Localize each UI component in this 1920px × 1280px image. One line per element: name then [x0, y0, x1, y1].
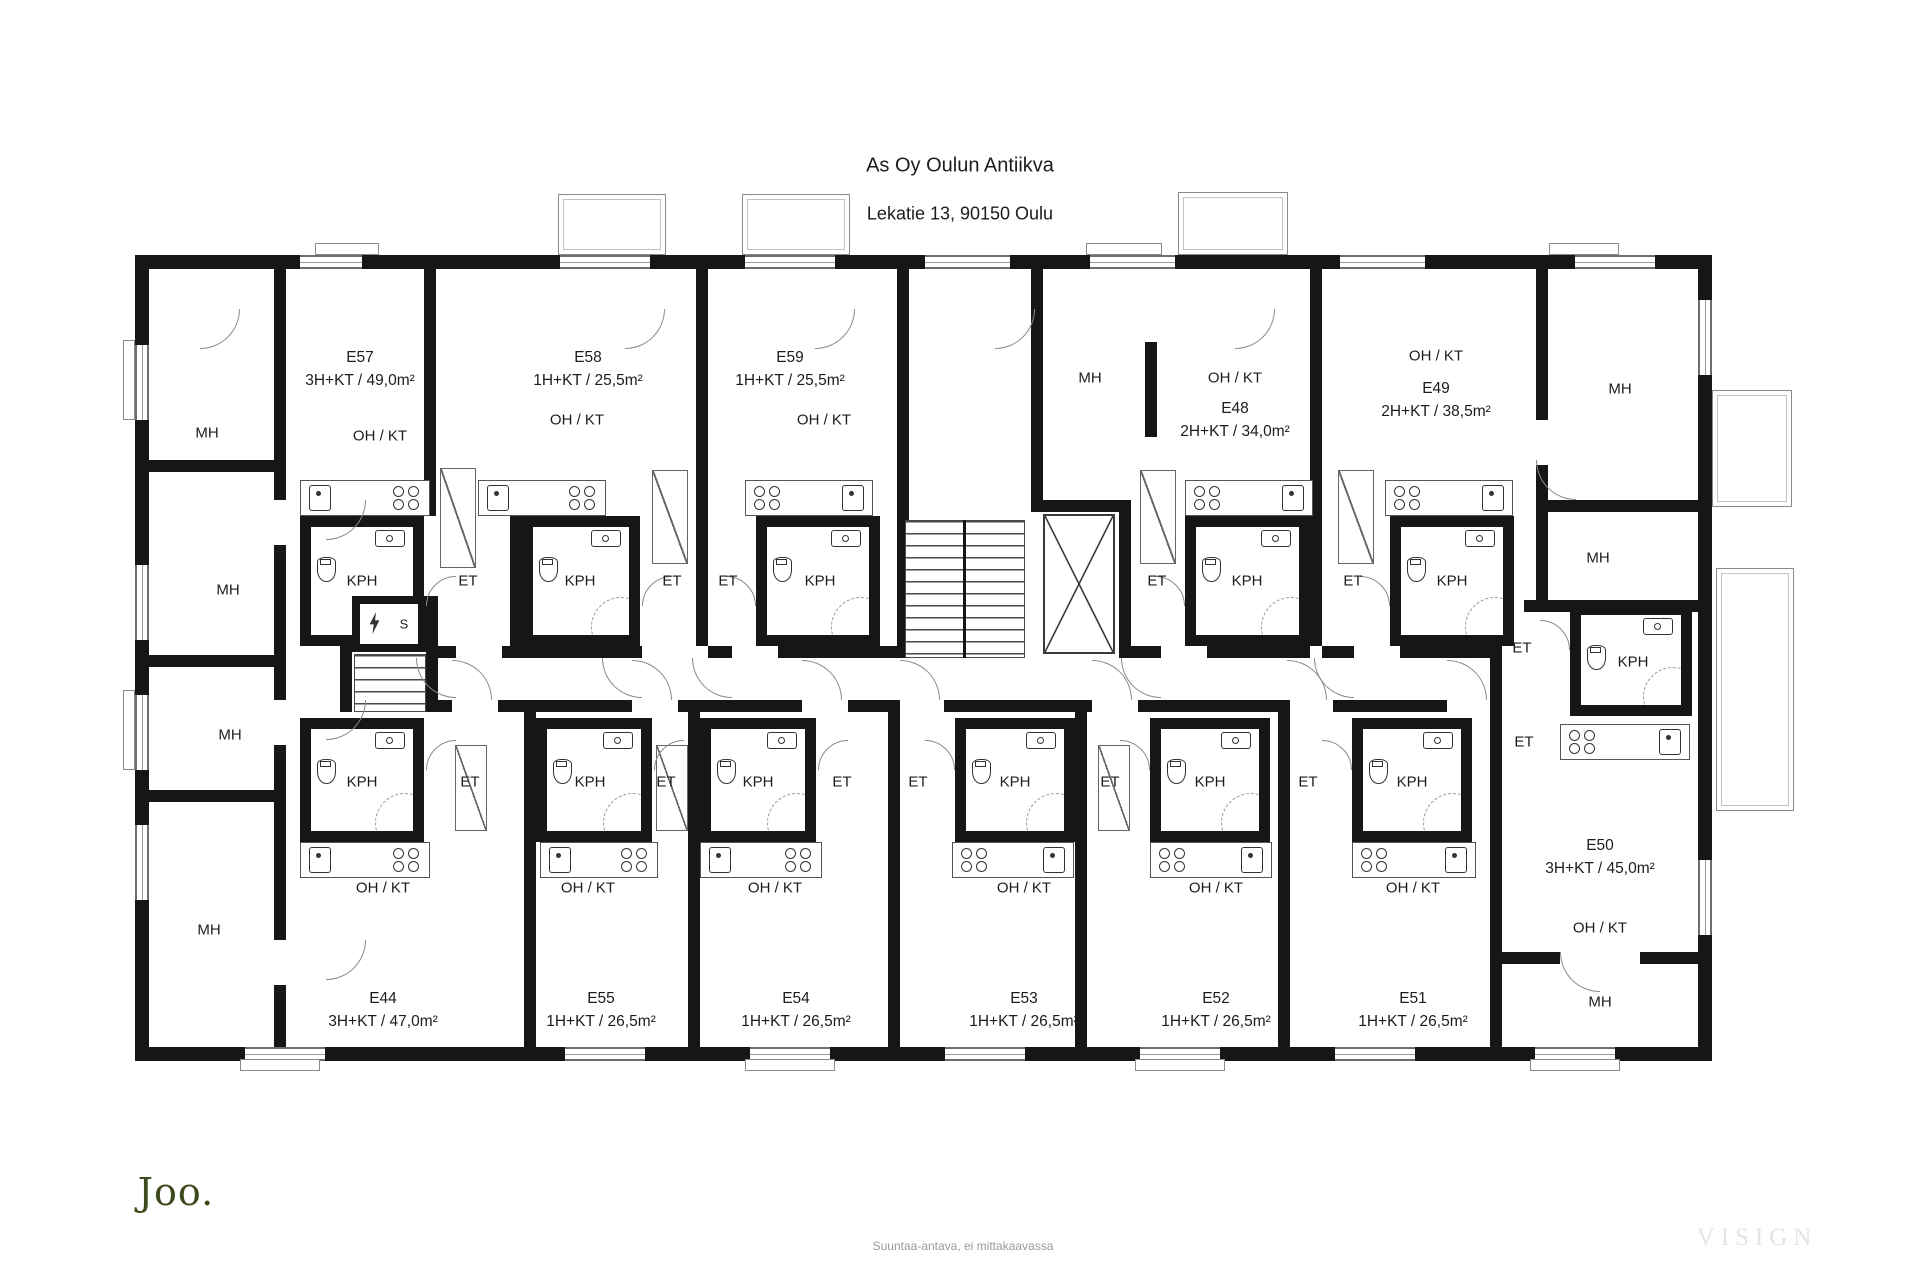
burner-icon	[584, 486, 595, 497]
burner-icon	[1376, 861, 1387, 872]
apartment-label-e44: E443H+KT / 47,0m²	[328, 987, 438, 1034]
kitchen-counter	[1352, 842, 1476, 878]
room-label-bedroom: MH	[197, 922, 220, 939]
burner-icon	[408, 486, 419, 497]
wall	[1322, 646, 1354, 658]
apartment-label-e58: E581H+KT / 25,5m²	[533, 346, 643, 393]
room-label-entry: ET	[1512, 640, 1531, 657]
door-arc	[1292, 740, 1352, 800]
apartment-label-e51: E511H+KT / 26,5m²	[1358, 987, 1468, 1034]
wall	[424, 269, 436, 516]
door-arc	[286, 460, 366, 540]
room-label-living: OH / KT	[1573, 920, 1627, 937]
window	[135, 825, 149, 900]
stove-icon	[1569, 730, 1597, 754]
burner-icon	[569, 499, 580, 510]
door-arc	[818, 740, 878, 800]
toilet-icon	[553, 759, 572, 784]
wall	[135, 790, 286, 802]
sink-icon	[309, 847, 331, 873]
burner-icon	[754, 499, 765, 510]
window	[1698, 860, 1712, 935]
washbasin-icon	[1026, 732, 1056, 749]
room-label-bedroom: MH	[216, 582, 239, 599]
wall	[1400, 646, 1490, 658]
burner-icon	[1394, 499, 1405, 510]
washbasin-icon	[1465, 530, 1495, 547]
burner-icon	[393, 848, 404, 859]
stove-icon	[1361, 848, 1389, 872]
page-subtitle: Lekatie 13, 90150 Oulu	[867, 204, 1053, 225]
room-label-bathroom: KPH	[1618, 654, 1649, 671]
wall	[696, 269, 708, 646]
sink-icon	[1445, 847, 1467, 873]
apartment-label-e49: E492H+KT / 38,5m²	[1381, 377, 1491, 424]
window	[300, 255, 362, 269]
burner-icon	[769, 486, 780, 497]
door-arc	[1195, 269, 1275, 349]
kitchen-counter	[952, 842, 1074, 878]
door-arc	[955, 269, 1035, 349]
page-title: As Oy Oulun Antiikva	[866, 155, 1054, 178]
kitchen-counter	[1385, 480, 1513, 516]
room-label-living: OH / KT	[550, 412, 604, 429]
kitchen-counter	[1185, 480, 1313, 516]
electrical-room	[352, 596, 426, 652]
burner-icon	[961, 861, 972, 872]
shower-icon	[603, 793, 652, 842]
apartment-spec: 1H+KT / 26,5m²	[741, 1010, 851, 1033]
washbasin-icon	[767, 732, 797, 749]
burner-icon	[800, 848, 811, 859]
wall	[1333, 700, 1447, 712]
wall	[1536, 500, 1712, 512]
room-label-bathroom: KPH	[347, 573, 378, 590]
apartment-spec: 3H+KT / 47,0m²	[328, 1010, 438, 1033]
apartment-spec: 1H+KT / 26,5m²	[546, 1010, 656, 1033]
wall	[1490, 952, 1560, 964]
balcony	[1178, 192, 1288, 255]
room-label-living: OH / KT	[797, 412, 851, 429]
shower-icon	[1026, 793, 1075, 842]
window	[135, 345, 149, 420]
room-label-entry: ET	[1514, 734, 1533, 751]
wall	[1490, 646, 1502, 1047]
door-arc	[775, 269, 855, 349]
disclaimer-note: Suuntaa-antava, ei mittakaavassa	[873, 1239, 1054, 1253]
toilet-icon	[317, 557, 336, 582]
wardrobe	[1338, 470, 1374, 564]
wall	[1207, 646, 1310, 658]
apartment-spec: 2H+KT / 34,0m²	[1180, 420, 1290, 443]
room-label-living: OH / KT	[1409, 348, 1463, 365]
apartment-spec: 1H+KT / 26,5m²	[969, 1010, 1079, 1033]
burner-icon	[621, 861, 632, 872]
shower-icon	[591, 597, 640, 646]
room-label-bedroom: MH	[1588, 994, 1611, 1011]
toilet-icon	[1407, 557, 1426, 582]
wall	[135, 655, 286, 667]
apartment-id: E44	[328, 987, 438, 1010]
room-label-bedroom: MH	[1586, 550, 1609, 567]
burner-icon	[961, 848, 972, 859]
burner-icon	[393, 486, 404, 497]
toilet-icon	[1202, 557, 1221, 582]
wardrobe	[652, 470, 688, 564]
door-arc	[160, 269, 240, 349]
wall	[1119, 500, 1131, 658]
wardrobe	[440, 468, 476, 568]
stove-icon	[754, 486, 782, 510]
wall	[274, 745, 286, 940]
balcony	[1716, 568, 1794, 811]
wall	[1145, 342, 1157, 437]
burner-icon	[800, 861, 811, 872]
burner-icon	[1584, 730, 1595, 741]
window	[1335, 1047, 1415, 1061]
stove-icon	[393, 848, 421, 872]
burner-icon	[785, 861, 796, 872]
room-label-bathroom: KPH	[1000, 774, 1031, 791]
sink-icon	[1659, 729, 1681, 755]
apartment-id: E53	[969, 987, 1079, 1010]
lightning-icon	[368, 612, 381, 634]
floor-plan-page: As Oy Oulun Antiikva Lekatie 13, 90150 O…	[0, 0, 1920, 1280]
toilet-icon	[717, 759, 736, 784]
apartment-label-e55: E551H+KT / 26,5m²	[546, 987, 656, 1034]
kitchen-counter	[540, 842, 658, 878]
shower-icon	[1465, 597, 1514, 646]
apartment-spec: 1H+KT / 26,5m²	[1161, 1010, 1271, 1033]
wall	[688, 700, 700, 1047]
kitchen-counter	[745, 480, 873, 516]
apartment-id: E51	[1358, 987, 1468, 1010]
apartment-id: E52	[1161, 987, 1271, 1010]
burner-icon	[1569, 743, 1580, 754]
burner-icon	[1194, 486, 1205, 497]
window	[1575, 255, 1655, 269]
room-label-living: OH / KT	[353, 428, 407, 445]
washbasin-icon	[1261, 530, 1291, 547]
wall	[888, 700, 900, 1047]
door-arc	[895, 740, 955, 800]
wall	[1131, 646, 1161, 658]
window-sill	[745, 1059, 835, 1071]
burner-icon	[636, 861, 647, 872]
wall	[426, 700, 452, 712]
burner-icon	[408, 499, 419, 510]
wall	[135, 255, 1712, 269]
wall	[498, 700, 632, 712]
burner-icon	[621, 848, 632, 859]
apartment-label-e48: E482H+KT / 34,0m²	[1180, 397, 1290, 444]
sink-icon	[487, 485, 509, 511]
burner-icon	[393, 861, 404, 872]
apartment-id: E59	[735, 346, 845, 369]
room-label-living: OH / KT	[997, 880, 1051, 897]
room-label-bathroom: KPH	[1232, 573, 1263, 590]
room-label-entry: ET	[662, 573, 681, 590]
room-label-entry: ET	[656, 774, 675, 791]
room-label-bedroom: MH	[1608, 381, 1631, 398]
apartment-label-e53: E531H+KT / 26,5m²	[969, 987, 1079, 1034]
apartment-id: E50	[1545, 834, 1655, 857]
apartment-id: E48	[1180, 397, 1290, 420]
wall	[274, 985, 286, 1047]
apartment-id: E55	[546, 987, 656, 1010]
apartment-spec: 3H+KT / 49,0m²	[305, 369, 415, 392]
apartment-spec: 3H+KT / 45,0m²	[1545, 857, 1655, 880]
toilet-icon	[1587, 645, 1606, 670]
burner-icon	[1361, 861, 1372, 872]
balcony	[742, 194, 850, 255]
toilet-icon	[1369, 759, 1388, 784]
wall	[135, 1047, 1712, 1061]
room-label-entry: ET	[458, 573, 477, 590]
burner-icon	[1159, 848, 1170, 859]
window-sill	[1530, 1059, 1620, 1071]
burner-icon	[584, 499, 595, 510]
apartment-id: E54	[741, 987, 851, 1010]
room-label-bathroom: KPH	[1195, 774, 1226, 791]
room-label-entry: ET	[718, 573, 737, 590]
sink-icon	[1241, 847, 1263, 873]
burner-icon	[408, 848, 419, 859]
shower-icon	[767, 793, 816, 842]
door-arc	[286, 900, 366, 980]
apartment-label-e59: E591H+KT / 25,5m²	[735, 346, 845, 393]
wall	[1536, 269, 1548, 420]
window	[135, 695, 149, 770]
wall	[135, 460, 286, 472]
wall	[1536, 512, 1548, 612]
room-label-bathroom: KPH	[565, 573, 596, 590]
window-sill	[123, 690, 135, 770]
room-label-living: OH / KT	[1208, 370, 1262, 387]
shower-icon	[1643, 667, 1692, 716]
toilet-icon	[773, 557, 792, 582]
window-sill	[1549, 243, 1619, 255]
sink-icon	[549, 847, 571, 873]
burner-icon	[785, 848, 796, 859]
apartment-label-e50: E503H+KT / 45,0m²	[1545, 834, 1655, 881]
shower-icon	[375, 793, 424, 842]
window	[1698, 300, 1712, 375]
room-label-bedroom: MH	[1078, 370, 1101, 387]
kitchen-counter	[300, 480, 430, 516]
window-sill	[240, 1059, 320, 1071]
washbasin-icon	[375, 732, 405, 749]
kitchen-counter	[1560, 724, 1690, 760]
kitchen-counter	[478, 480, 606, 516]
burner-icon	[408, 861, 419, 872]
stove-icon	[1194, 486, 1222, 510]
stair-rail	[963, 520, 966, 658]
apartment-spec: 2H+KT / 38,5m²	[1381, 400, 1491, 423]
stove-icon	[961, 848, 989, 872]
room-label-living: OH / KT	[1189, 880, 1243, 897]
window-sill	[1086, 243, 1162, 255]
door-arc	[1536, 420, 1616, 500]
wall	[1698, 255, 1712, 1061]
wall	[1310, 269, 1322, 646]
apartment-label-e57: E573H+KT / 49,0m²	[305, 346, 415, 393]
wall	[274, 545, 286, 700]
burner-icon	[1209, 499, 1220, 510]
room-label-entry: ET	[1298, 774, 1317, 791]
window	[925, 255, 1010, 269]
room-label-electrical: S	[400, 617, 409, 632]
sink-icon	[1482, 485, 1504, 511]
washbasin-icon	[831, 530, 861, 547]
burner-icon	[1159, 861, 1170, 872]
elevator-x-icon	[1045, 516, 1113, 652]
wardrobe	[1140, 470, 1176, 564]
burner-icon	[769, 499, 780, 510]
burner-icon	[1376, 848, 1387, 859]
burner-icon	[1174, 848, 1185, 859]
shower-icon	[831, 597, 880, 646]
sink-icon	[1282, 485, 1304, 511]
room-label-bedroom: MH	[218, 727, 241, 744]
wall	[1031, 500, 1131, 512]
burner-icon	[976, 861, 987, 872]
room-label-entry: ET	[832, 774, 851, 791]
door-arc	[1314, 618, 1394, 698]
room-label-entry: ET	[1147, 573, 1166, 590]
stove-icon	[569, 486, 597, 510]
apartment-label-e54: E541H+KT / 26,5m²	[741, 987, 851, 1034]
burner-icon	[636, 848, 647, 859]
room-label-living: OH / KT	[356, 880, 410, 897]
sink-icon	[709, 847, 731, 873]
window	[745, 255, 835, 269]
wall	[778, 646, 897, 658]
window	[560, 255, 650, 269]
washbasin-icon	[591, 530, 621, 547]
stove-icon	[621, 848, 649, 872]
toilet-icon	[972, 759, 991, 784]
wall	[708, 646, 732, 658]
burner-icon	[976, 848, 987, 859]
burner-icon	[1194, 499, 1205, 510]
room-label-entry: ET	[460, 774, 479, 791]
apartment-spec: 1H+KT / 25,5m²	[735, 369, 845, 392]
burner-icon	[1584, 743, 1595, 754]
window	[135, 565, 149, 640]
room-label-bathroom: KPH	[743, 774, 774, 791]
stove-icon	[785, 848, 813, 872]
room-label-living: OH / KT	[748, 880, 802, 897]
visign-watermark: VISIGN	[1697, 1224, 1818, 1252]
wall	[502, 646, 642, 658]
window	[945, 1047, 1025, 1061]
toilet-icon	[539, 557, 558, 582]
window	[1340, 255, 1425, 269]
kitchen-counter	[700, 842, 822, 878]
window	[1090, 255, 1175, 269]
apartment-spec: 1H+KT / 25,5m²	[533, 369, 643, 392]
room-label-bathroom: KPH	[805, 573, 836, 590]
room-label-bathroom: KPH	[1437, 573, 1468, 590]
wall	[1278, 700, 1290, 1047]
balcony	[1712, 390, 1792, 507]
wall	[1138, 700, 1287, 712]
washbasin-icon	[1423, 732, 1453, 749]
wall	[524, 700, 536, 1047]
washbasin-icon	[1221, 732, 1251, 749]
room-label-entry: ET	[908, 774, 927, 791]
stove-icon	[393, 486, 421, 510]
wall	[678, 700, 802, 712]
joo-logo: Joo.	[138, 1170, 214, 1214]
kitchen-counter	[300, 842, 430, 878]
shower-icon	[1221, 793, 1270, 842]
apartment-id: E57	[305, 346, 415, 369]
kitchen-counter	[1150, 842, 1272, 878]
door-arc	[585, 269, 665, 349]
burner-icon	[1174, 861, 1185, 872]
burner-icon	[569, 486, 580, 497]
burner-icon	[1569, 730, 1580, 741]
burner-icon	[393, 499, 404, 510]
room-label-living: OH / KT	[1386, 880, 1440, 897]
apartment-id: E49	[1381, 377, 1491, 400]
washbasin-icon	[375, 530, 405, 547]
window-sill	[1135, 1059, 1225, 1071]
toilet-icon	[317, 759, 336, 784]
wall	[1031, 269, 1043, 512]
room-label-bathroom: KPH	[347, 774, 378, 791]
burner-icon	[1209, 486, 1220, 497]
burner-icon	[1409, 499, 1420, 510]
elevator	[1043, 514, 1115, 654]
burner-icon	[1409, 486, 1420, 497]
shower-icon	[1261, 597, 1310, 646]
window-sill	[123, 340, 135, 420]
burner-icon	[1361, 848, 1372, 859]
stove-icon	[1159, 848, 1187, 872]
washbasin-icon	[603, 732, 633, 749]
shower-icon	[1423, 793, 1472, 842]
room-label-living: OH / KT	[561, 880, 615, 897]
room-label-entry: ET	[1343, 573, 1362, 590]
apartment-label-e52: E521H+KT / 26,5m²	[1161, 987, 1271, 1034]
room-label-bathroom: KPH	[575, 774, 606, 791]
room-label-entry: ET	[1100, 774, 1119, 791]
room-label-bedroom: MH	[195, 425, 218, 442]
sink-icon	[1043, 847, 1065, 873]
wall	[274, 269, 286, 500]
balcony	[558, 194, 666, 255]
window-sill	[315, 243, 379, 255]
burner-icon	[1394, 486, 1405, 497]
wall	[848, 700, 900, 712]
sink-icon	[842, 485, 864, 511]
apartment-spec: 1H+KT / 26,5m²	[1358, 1010, 1468, 1033]
stove-icon	[1394, 486, 1422, 510]
wall	[944, 700, 1092, 712]
burner-icon	[754, 486, 765, 497]
wall	[1640, 952, 1712, 964]
apartment-id: E58	[533, 346, 643, 369]
wall	[510, 516, 522, 646]
window	[565, 1047, 645, 1061]
toilet-icon	[1167, 759, 1186, 784]
room-label-bathroom: KPH	[1397, 774, 1428, 791]
washbasin-icon	[1643, 618, 1673, 635]
